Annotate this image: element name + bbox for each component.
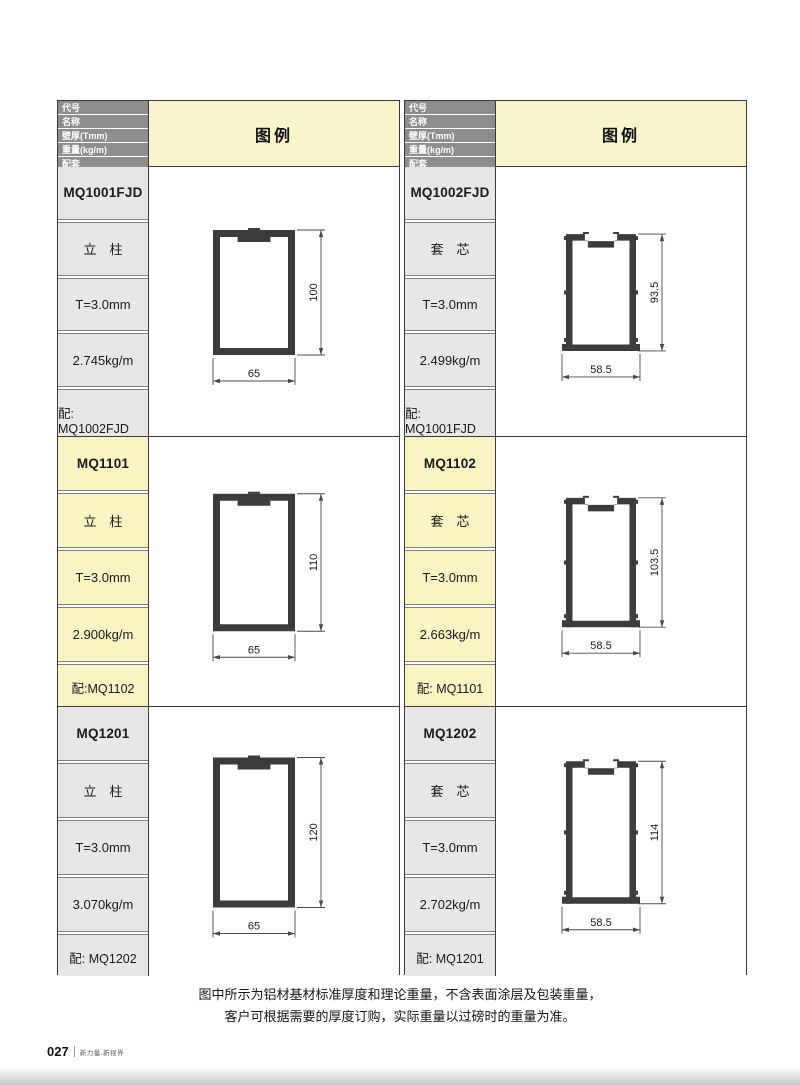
diagram-cell: 12065 [148,707,399,976]
profile-name: 套 芯 [405,764,495,817]
table-row: MQ1201 立 柱 T=3.0mm 3.070kg/m 配: MQ1202 1… [58,706,399,976]
profile-diagram: 12065 [149,707,399,976]
profile-thickness: T=3.0mm [58,279,148,331]
profile-weight: 2.745kg/m [58,334,148,386]
profile-match: 配: MQ1002FJD [58,390,148,436]
profile-diagram: 11065 [149,437,399,706]
footer-slogan: 新力量.新视界 [80,1047,124,1057]
legend-header: 图例 [148,101,399,166]
header-label-column: 代号 名称 壁厚(Tmm) 重量(kg/m) 配套 [58,101,148,166]
profile-code: MQ1001FJD [58,167,148,219]
profile-name: 立 柱 [58,494,148,547]
svg-text:58.5: 58.5 [590,640,611,652]
profile-name: 套 芯 [405,223,495,275]
svg-text:103.5: 103.5 [649,549,661,577]
profile-thickness: T=3.0mm [58,551,148,604]
header-name-label: 名称 [58,115,148,128]
header-thickness-label: 壁厚(Tmm) [405,129,495,142]
profile-code: MQ1102 [405,437,495,490]
profile-code: MQ1002FJD [405,167,495,219]
profile-match: 配: MQ1201 [405,935,495,976]
header-weight-label: 重量(kg/m) [58,143,148,156]
footer-divider [74,1046,75,1057]
page-bottom-shadow [0,1067,800,1085]
svg-text:110: 110 [308,554,320,572]
spec-column: MQ1202 套 芯 T=3.0mm 2.702kg/m 配: MQ1201 [405,707,495,976]
profile-weight: 3.070kg/m [58,878,148,931]
page-number: 027 [47,1044,69,1059]
header-name-label: 名称 [405,115,495,128]
profile-thickness: T=3.0mm [405,551,495,604]
spec-table-right: 代号 名称 壁厚(Tmm) 重量(kg/m) 配套 图例 MQ1002FJD 套… [404,100,747,975]
diagram-cell: 10065 [148,167,399,436]
header-thickness-label: 壁厚(Tmm) [58,129,148,142]
profile-code: MQ1201 [58,707,148,760]
table-row: MQ1102 套 芯 T=3.0mm 2.663kg/m 配: MQ1101 1… [405,436,746,706]
svg-text:58.5: 58.5 [590,917,611,929]
profile-diagram: 11458.5 [496,707,746,976]
profile-name: 套 芯 [405,494,495,547]
table-row: MQ1002FJD 套 芯 T=3.0mm 2.499kg/m 配: MQ100… [405,166,746,436]
profile-weight: 2.499kg/m [405,334,495,386]
spec-table-left: 代号 名称 壁厚(Tmm) 重量(kg/m) 配套 图例 MQ1001FJD 立… [57,100,400,975]
profile-match: 配: MQ1202 [58,935,148,976]
profile-diagram: 103.558.5 [496,437,746,706]
spec-column: MQ1002FJD 套 芯 T=3.0mm 2.499kg/m 配: MQ100… [405,167,495,436]
table-header: 代号 名称 壁厚(Tmm) 重量(kg/m) 配套 图例 [58,101,399,166]
svg-text:65: 65 [248,644,260,656]
profile-diagram: 93.558.5 [496,167,746,436]
profile-match: 配: MQ1001FJD [405,390,495,436]
spec-column: MQ1101 立 柱 T=3.0mm 2.900kg/m 配:MQ1102 [58,437,148,706]
svg-text:114: 114 [649,824,661,842]
svg-text:65: 65 [248,368,260,380]
profile-weight: 2.702kg/m [405,878,495,931]
profile-diagram: 10065 [149,167,399,436]
spec-column: MQ1001FJD 立 柱 T=3.0mm 2.745kg/m 配: MQ100… [58,167,148,436]
profile-name: 立 柱 [58,764,148,817]
header-label-column: 代号 名称 壁厚(Tmm) 重量(kg/m) 配套 [405,101,495,166]
profile-thickness: T=3.0mm [405,279,495,331]
table-row: MQ1001FJD 立 柱 T=3.0mm 2.745kg/m 配: MQ100… [58,166,399,436]
profile-match: 配: MQ1101 [405,665,495,706]
profile-match: 配:MQ1102 [58,665,148,706]
svg-text:100: 100 [308,283,320,301]
svg-text:58.5: 58.5 [590,364,611,376]
profile-thickness: T=3.0mm [58,821,148,874]
footnote-line1: 图中所示为铝材基材标准厚度和理论重量，不含表面涂层及包装重量， [0,984,800,1006]
diagram-cell: 93.558.5 [495,167,746,436]
legend-header: 图例 [495,101,746,166]
spec-column: MQ1201 立 柱 T=3.0mm 3.070kg/m 配: MQ1202 [58,707,148,976]
svg-text:93.5: 93.5 [649,282,661,303]
svg-text:120: 120 [308,823,320,841]
header-code-label: 代号 [405,101,495,114]
profile-thickness: T=3.0mm [405,821,495,874]
diagram-cell: 11458.5 [495,707,746,976]
diagram-cell: 103.558.5 [495,437,746,706]
profile-code: MQ1101 [58,437,148,490]
header-weight-label: 重量(kg/m) [405,143,495,156]
spec-column: MQ1102 套 芯 T=3.0mm 2.663kg/m 配: MQ1101 [405,437,495,706]
table-row: MQ1101 立 柱 T=3.0mm 2.900kg/m 配:MQ1102 11… [58,436,399,706]
footnote: 图中所示为铝材基材标准厚度和理论重量，不含表面涂层及包装重量， 客户可根据需要的… [0,984,800,1028]
table-header: 代号 名称 壁厚(Tmm) 重量(kg/m) 配套 图例 [405,101,746,166]
diagram-cell: 11065 [148,437,399,706]
table-row: MQ1202 套 芯 T=3.0mm 2.702kg/m 配: MQ1201 1… [405,706,746,976]
profile-weight: 2.663kg/m [405,608,495,661]
header-code-label: 代号 [58,101,148,114]
profile-weight: 2.900kg/m [58,608,148,661]
profile-name: 立 柱 [58,223,148,275]
footnote-line2: 客户可根据需要的厚度订购，实际重量以过磅时的重量为准。 [0,1006,800,1028]
svg-text:65: 65 [248,921,260,933]
page-footer: 027 新力量.新视界 [47,1044,124,1059]
profile-code: MQ1202 [405,707,495,760]
